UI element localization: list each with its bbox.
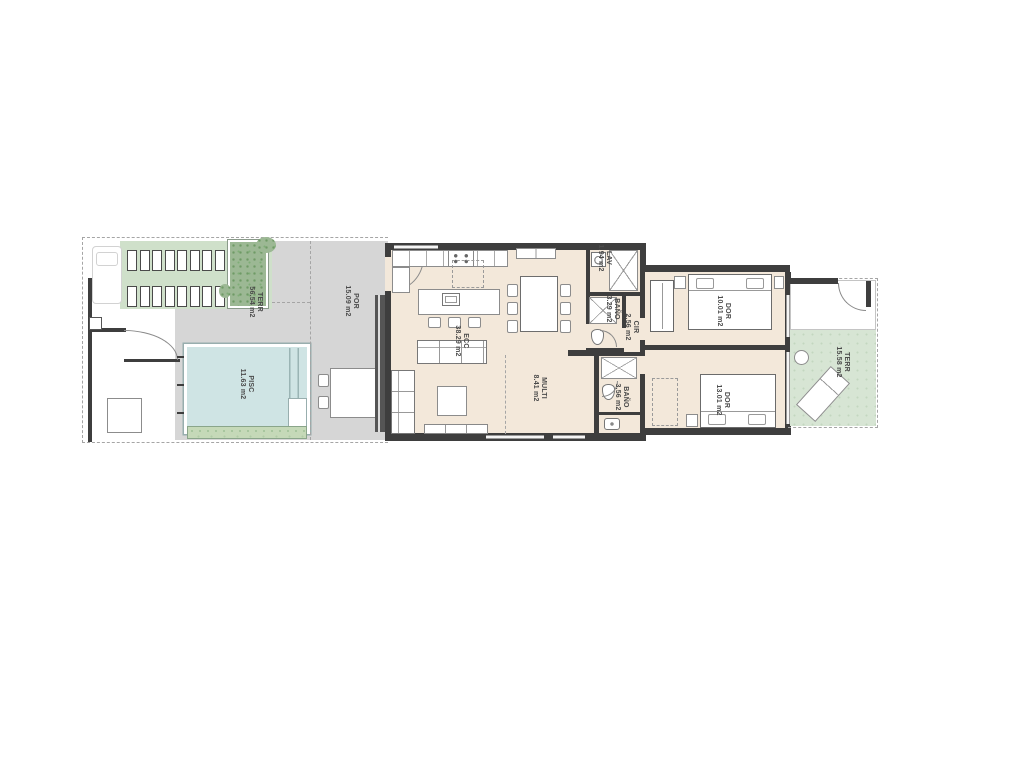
porch-boundary-dashed — [310, 241, 311, 440]
pergola-slat — [190, 250, 200, 271]
room-name: BAÑO — [612, 298, 620, 319]
window — [394, 244, 438, 249]
porch-chair — [318, 374, 329, 387]
room-label-bathroom-1: BAÑO 3.29 m2 — [602, 287, 622, 331]
multi-partition-dashed — [505, 355, 506, 434]
pergola-slat — [177, 250, 187, 271]
island-sink — [442, 293, 460, 306]
wardrobe-dashed — [652, 378, 678, 426]
dining-table — [520, 276, 558, 332]
room-label-circulation: CIR 2.56 m2 — [621, 305, 641, 349]
floor-plan: TERR 56.54 m2 POR 15.09 m2 PISC 11.63 m2… — [0, 0, 1024, 768]
pergola-slat — [165, 286, 175, 307]
window — [486, 434, 544, 440]
room-area: 8.41 m2 — [531, 374, 539, 401]
room-label-terrace-right: TERR 15.58 m2 — [832, 340, 852, 384]
plant — [219, 284, 231, 298]
wing-wall-top — [640, 265, 790, 272]
bed-pillow — [748, 414, 766, 425]
tv-unit — [424, 424, 488, 434]
pergola-slat — [202, 250, 212, 271]
bed-pillow — [696, 278, 714, 289]
extractor-hood-dashed — [452, 260, 484, 288]
pergola-slat — [165, 250, 175, 271]
pergola-slat — [140, 286, 150, 307]
room-label-bedroom-2: DOR 13.01 m2 — [712, 378, 732, 422]
pergola-slat — [140, 250, 150, 271]
porch-chair — [318, 396, 329, 409]
room-label-bedroom-1: DOR 10.01 m2 — [713, 289, 733, 333]
room-label-laundry: LAV 1.94 m2 — [594, 236, 614, 280]
room-label-living-kitchen: ECC 38.29 m2 — [451, 319, 471, 363]
window — [553, 434, 585, 440]
room-name: DOR — [722, 392, 730, 408]
room-name: PISC — [246, 375, 254, 392]
pergola-slat — [152, 286, 162, 307]
pergola-slats-row — [127, 286, 225, 307]
garden-table — [107, 398, 142, 433]
pergola-slat — [215, 250, 225, 271]
nightstand — [686, 414, 698, 427]
room-name: TERR — [255, 292, 263, 312]
room-area: 3.29 m2 — [604, 295, 612, 322]
coffee-table — [437, 386, 467, 416]
lawn-strip — [187, 426, 307, 439]
pergola-slat — [190, 286, 200, 307]
room-area: 11.63 m2 — [238, 369, 246, 400]
sliding-glass-door — [375, 295, 385, 432]
room-area: 13.01 m2 — [714, 384, 722, 415]
pergola-slat — [152, 250, 162, 271]
nightstand — [774, 276, 784, 289]
room-area: 38.29 m2 — [453, 325, 461, 356]
bed-pillow — [746, 278, 764, 289]
dining-chair — [560, 320, 571, 333]
room-label-bathroom-2: BAÑO 3.56 m2 — [611, 375, 631, 419]
wall-corridor-bath2 — [599, 352, 645, 356]
wardrobe — [650, 280, 674, 332]
room-area: 2.56 m2 — [623, 313, 631, 340]
plant — [256, 237, 276, 253]
room-name: CIR — [631, 321, 639, 334]
porch-table — [330, 368, 377, 418]
dining-chair — [560, 302, 571, 315]
pergola-slat — [127, 250, 137, 271]
room-name: TERR — [842, 352, 850, 372]
dining-chair — [507, 320, 518, 333]
meter-box — [89, 317, 102, 330]
dining-chair — [560, 284, 571, 297]
wall-between-bedrooms — [645, 345, 790, 350]
room-label-porch: POR 15.09 m2 — [341, 279, 361, 323]
pergola-slat — [177, 286, 187, 307]
washbasin — [604, 418, 620, 430]
wall-multi-bath2 — [594, 352, 599, 434]
room-label-terrace-left: TERR 56.54 m2 — [245, 280, 265, 324]
terrace-wall-stub — [788, 278, 838, 284]
room-label-pool: PISC 11.63 m2 — [236, 362, 256, 406]
pool-ladder-mark — [177, 384, 184, 386]
terrace-door-leaf — [866, 281, 871, 307]
sideboard — [516, 248, 556, 259]
pool-ladder-mark — [177, 356, 184, 358]
room-name: MULTI — [539, 377, 547, 399]
room-area: 15.58 m2 — [834, 346, 842, 377]
room-name: ECC — [461, 333, 469, 348]
room-area: 10.01 m2 — [715, 295, 723, 326]
room-name: BAÑO — [621, 386, 629, 407]
pergola-slats-row — [127, 250, 225, 271]
left-wall — [88, 278, 92, 442]
wall-left — [385, 243, 391, 257]
pool-ladder-mark — [177, 412, 184, 414]
wing-wall-bottom — [640, 428, 790, 435]
stool — [428, 317, 441, 328]
dining-chair — [507, 284, 518, 297]
room-label-multi: MULTI 8.41 m2 — [529, 366, 549, 410]
nightstand — [674, 276, 686, 289]
pergola-slat — [127, 286, 137, 307]
room-name: LAV — [604, 251, 612, 265]
wall-lav-left — [586, 249, 590, 294]
room-name: POR — [351, 293, 359, 309]
terrace-side-table — [794, 350, 809, 365]
room-area: 56.54 m2 — [247, 286, 255, 317]
dining-chair — [507, 302, 518, 315]
porch-boundary-dashed — [272, 302, 310, 303]
sun-lounger-faint-part — [96, 252, 118, 266]
room-area: 15.09 m2 — [343, 285, 351, 316]
room-area: 3.56 m2 — [613, 383, 621, 410]
sofa — [391, 370, 415, 434]
pergola-slat — [202, 286, 212, 307]
room-name: DOR — [723, 303, 731, 319]
kitchen-tall-unit — [392, 267, 410, 293]
room-area: 1.94 m2 — [596, 244, 604, 271]
